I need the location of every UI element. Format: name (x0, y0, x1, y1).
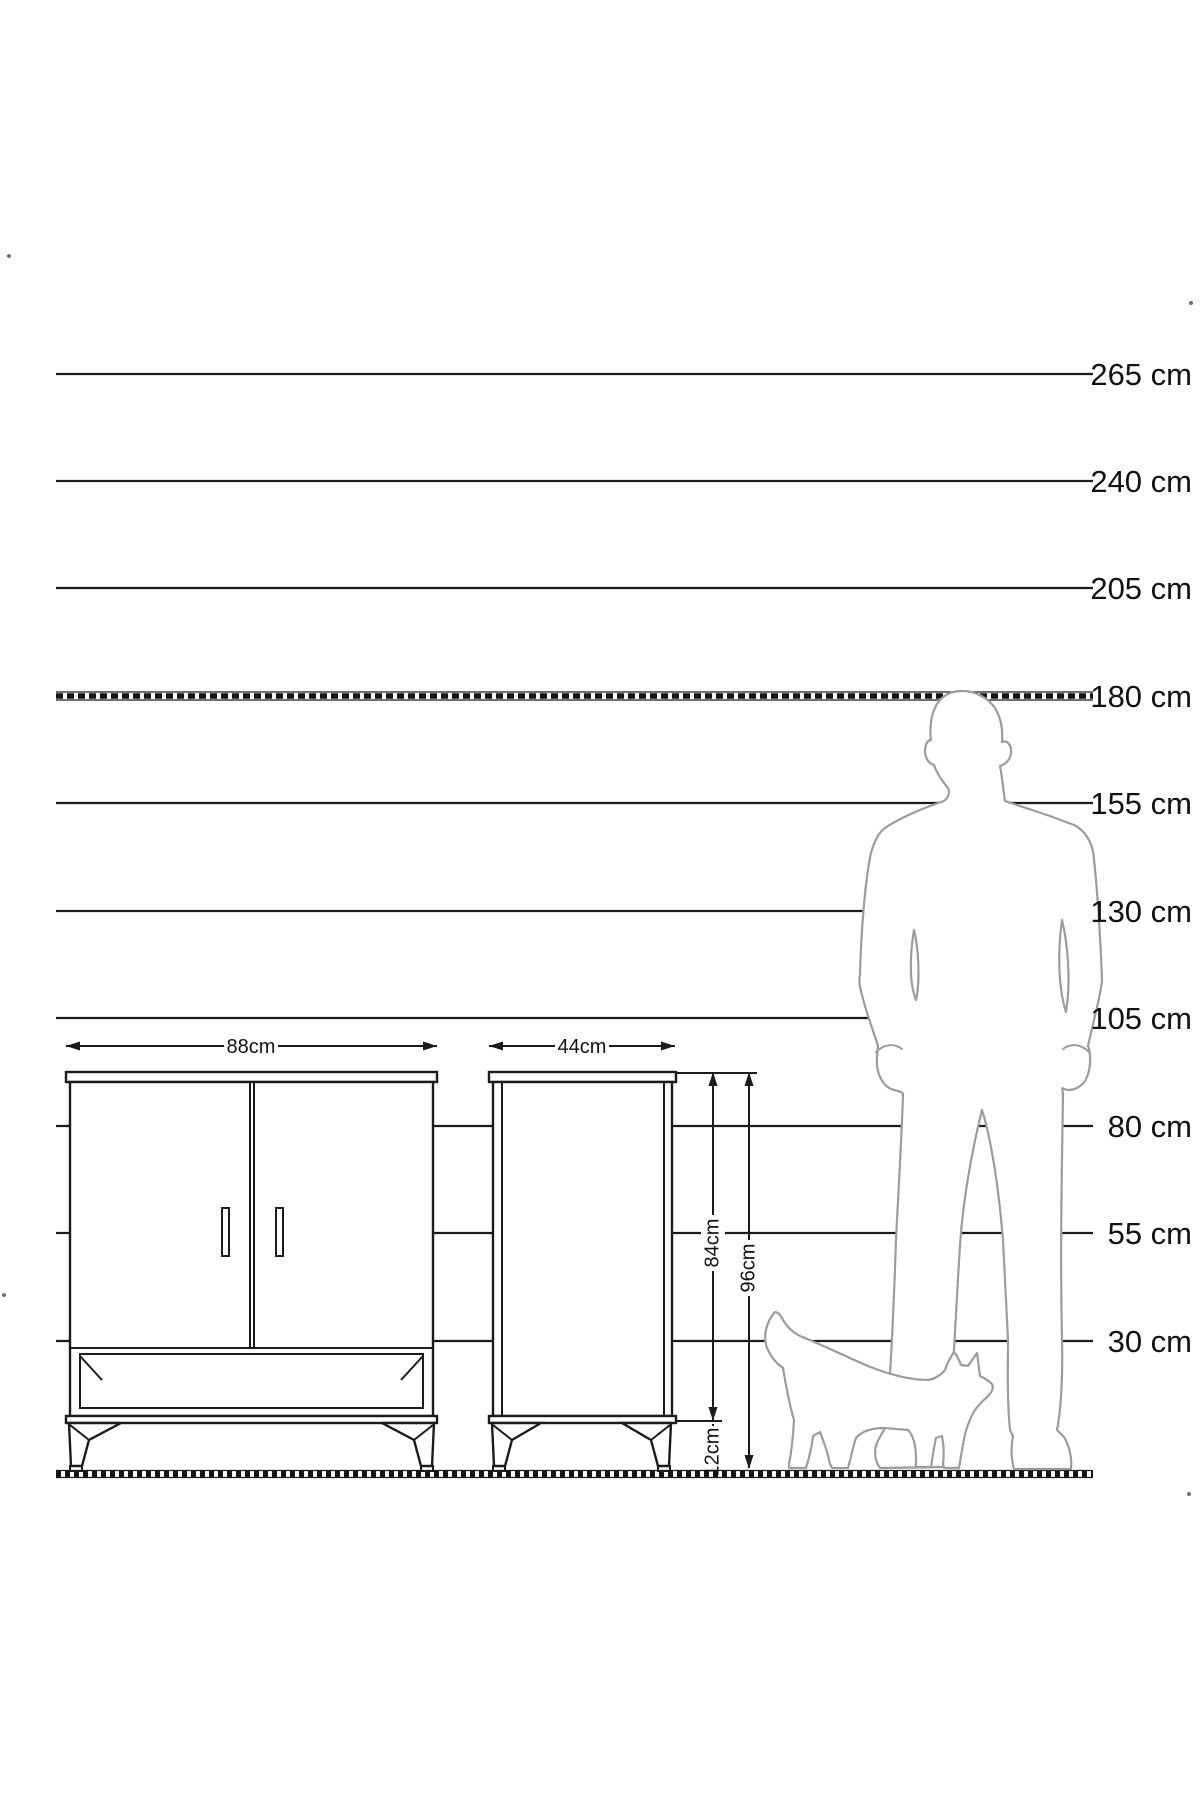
scale-label-130: 130 cm (1090, 894, 1192, 929)
scale-line-180-hatched (56, 692, 1093, 700)
scale-label-155: 155 cm (1090, 786, 1192, 821)
size-comparison-diagram: 88cm 44cm 84cm 96cm 12cm (0, 0, 1200, 1800)
scale-label-80: 80 cm (1108, 1109, 1192, 1144)
dimension-body-height: 84cm (701, 1072, 725, 1421)
side-leg-left (492, 1423, 541, 1471)
side-top-panel (489, 1072, 676, 1082)
dimension-side-depth: 44cm (489, 1033, 675, 1059)
man-silhouette (859, 691, 1102, 1469)
front-top-panel (66, 1072, 437, 1082)
scale-label-180: 180 cm (1090, 679, 1192, 714)
side-leg-right (622, 1423, 671, 1471)
cabinet-front-view (66, 1072, 437, 1471)
dimension-total-height: 96cm (737, 1072, 761, 1469)
floor-line (56, 1471, 1093, 1478)
side-body (493, 1082, 672, 1416)
scale-label-30: 30 cm (1108, 1324, 1192, 1359)
diagram-canvas: 88cm 44cm 84cm 96cm 12cm (0, 0, 1200, 1800)
scale-label-55: 55 cm (1108, 1216, 1192, 1251)
dimension-front-width: 88cm (66, 1033, 437, 1059)
cabinet-side-view (489, 1072, 676, 1471)
side-depth-label: 44cm (558, 1036, 607, 1058)
scale-label-105: 105 cm (1090, 1001, 1192, 1036)
front-leg-right (382, 1423, 434, 1471)
scale-label-265: 265 cm (1090, 357, 1192, 392)
height-scale-labels: 265 cm 240 cm 205 cm 180 cm 155 cm 130 c… (1090, 357, 1192, 1359)
scale-label-205: 205 cm (1090, 571, 1192, 606)
leg-height-label: 12cm (701, 1428, 723, 1477)
body-height-label: 84cm (701, 1219, 723, 1268)
front-base-panel (66, 1416, 437, 1423)
dimension-leg-height: 12cm (701, 1424, 725, 1476)
scale-label-240: 240 cm (1090, 464, 1192, 499)
total-height-label: 96cm (737, 1244, 759, 1293)
front-width-label: 88cm (227, 1036, 276, 1058)
front-body (70, 1082, 433, 1416)
front-leg-left (69, 1423, 121, 1471)
